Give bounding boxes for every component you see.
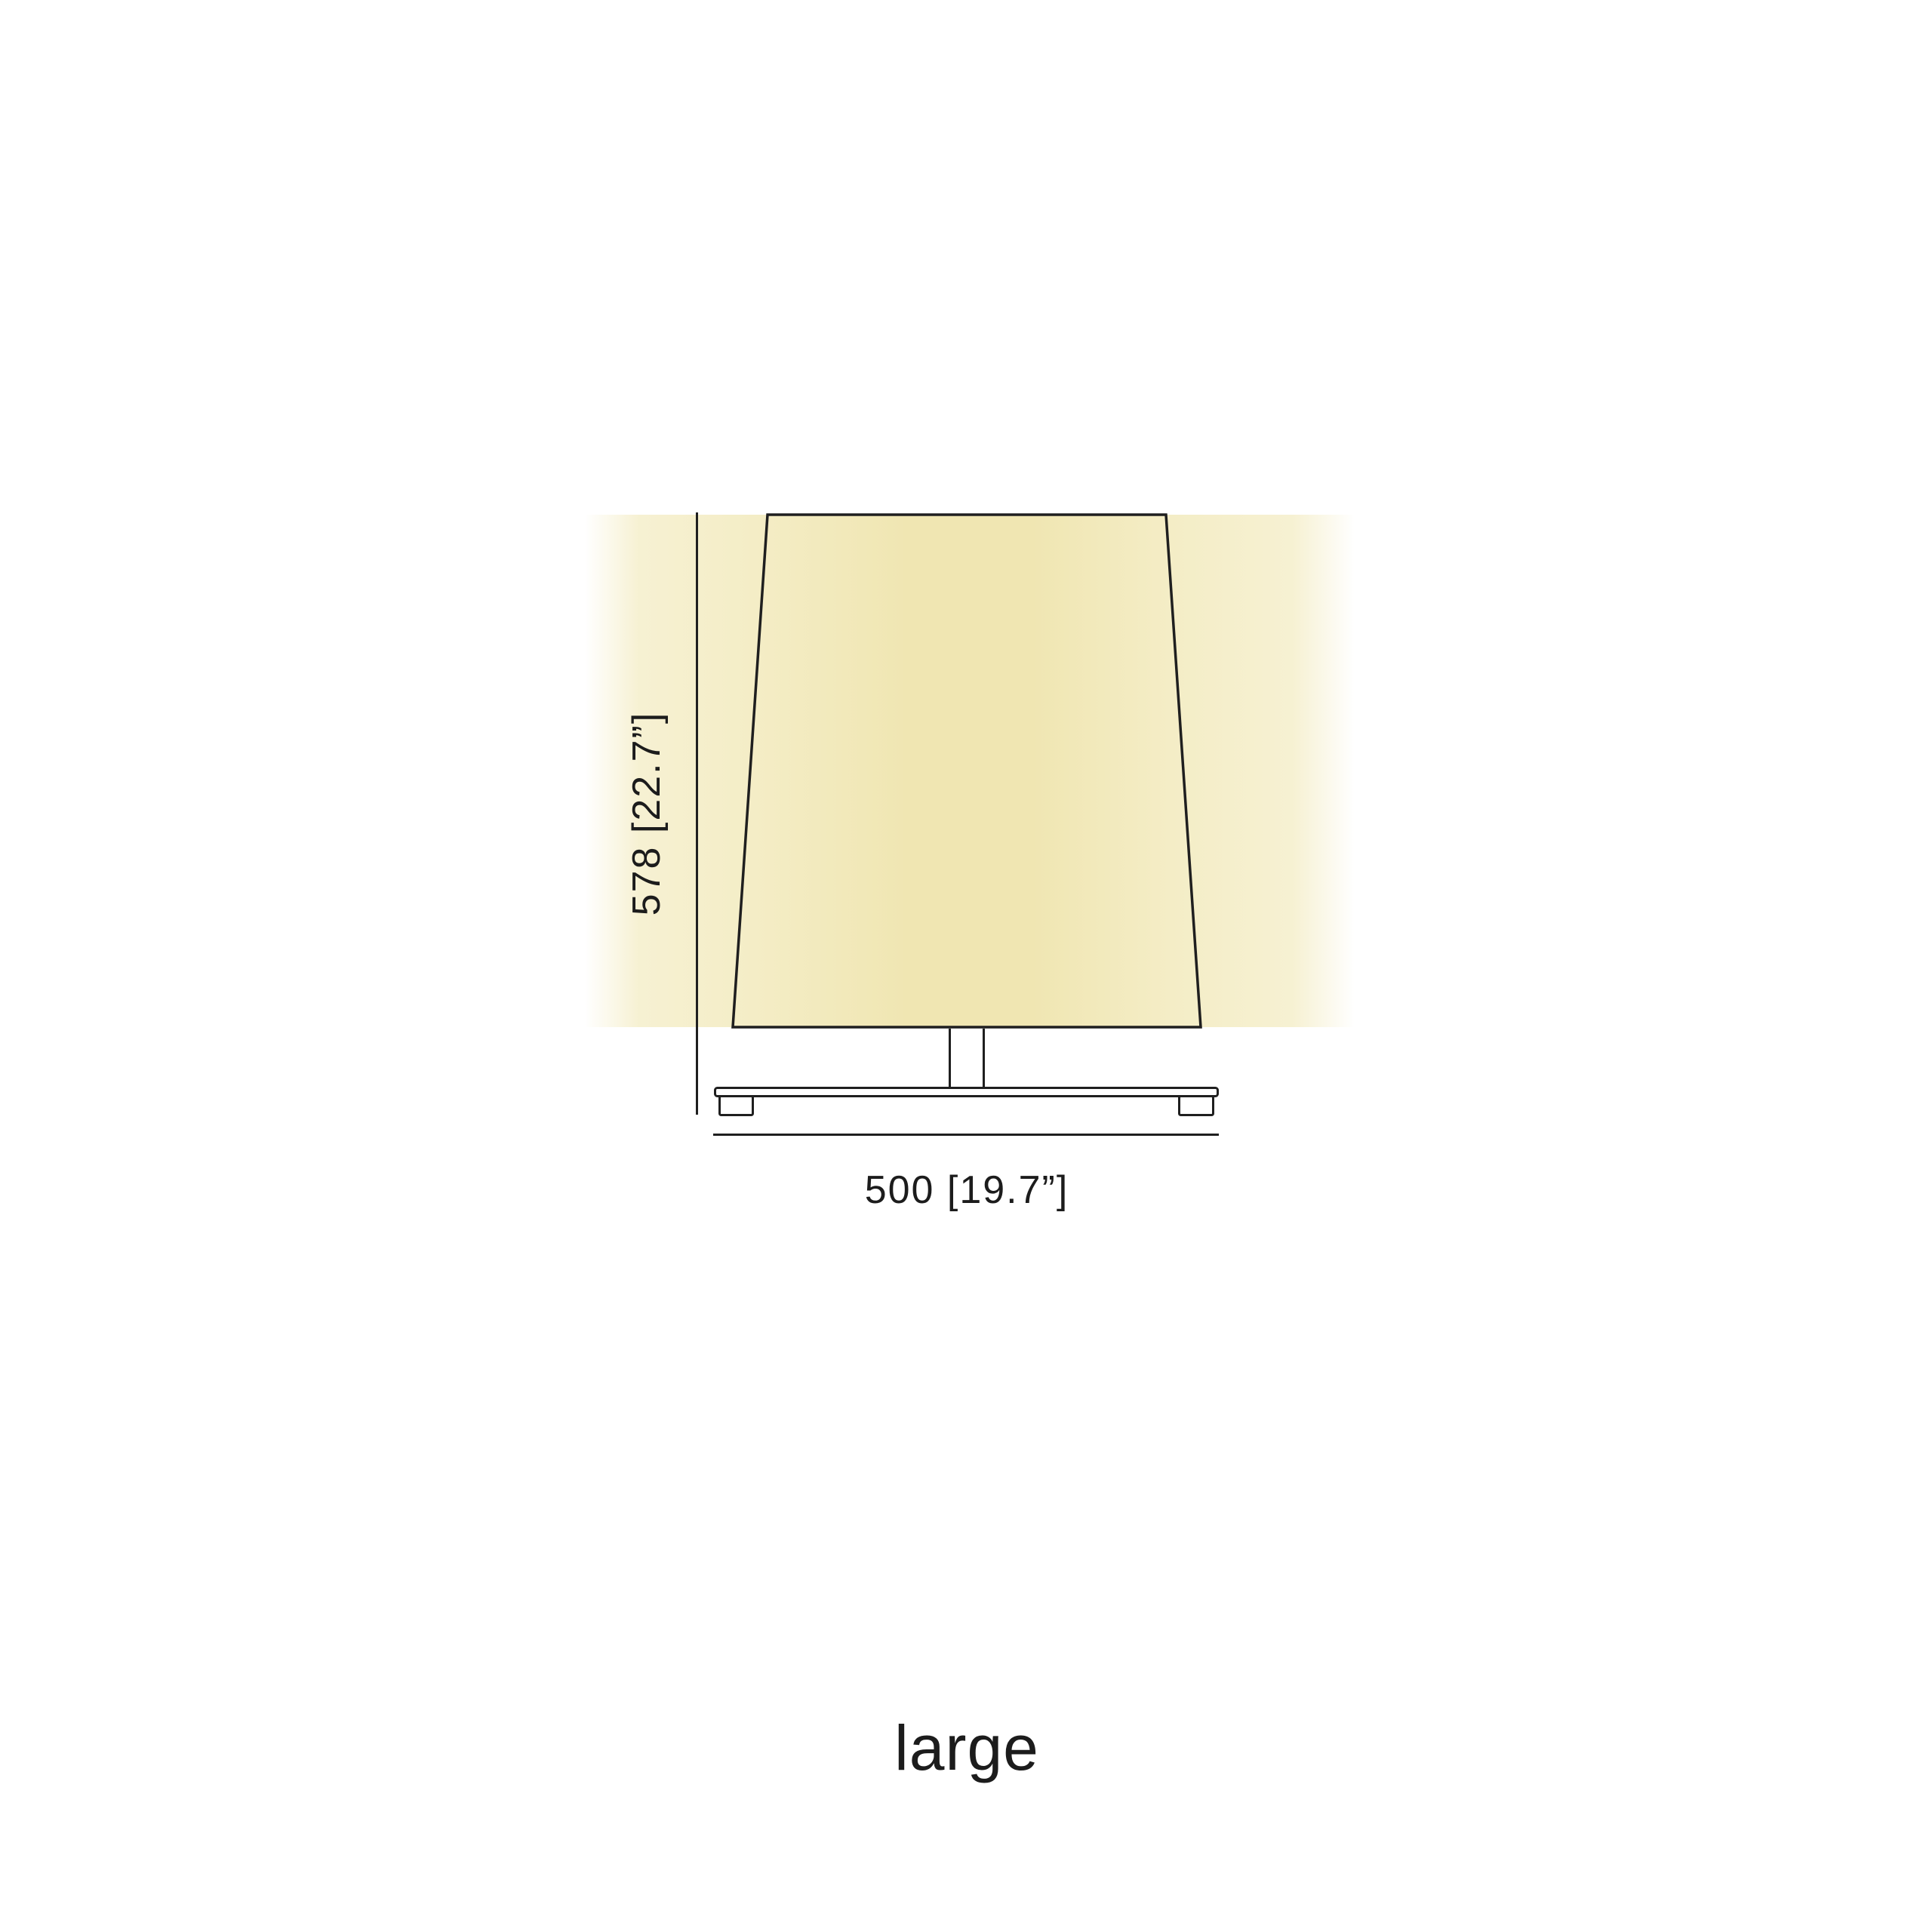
base-plate — [715, 1088, 1218, 1097]
height-dimension-label: 578 [22.7”] — [627, 712, 666, 916]
lamp-drawing — [0, 0, 1932, 1932]
lamp-dimension-diagram: 578 [22.7”] 500 [19.7”] large — [0, 0, 1932, 1932]
glow-band — [585, 515, 1355, 1027]
base-foot-right — [1180, 1097, 1214, 1115]
size-label: large — [894, 1716, 1039, 1780]
lamp-stem — [950, 1029, 984, 1088]
base-foot-left — [720, 1097, 753, 1115]
width-dimension-label: 500 [19.7”] — [865, 1171, 1069, 1210]
